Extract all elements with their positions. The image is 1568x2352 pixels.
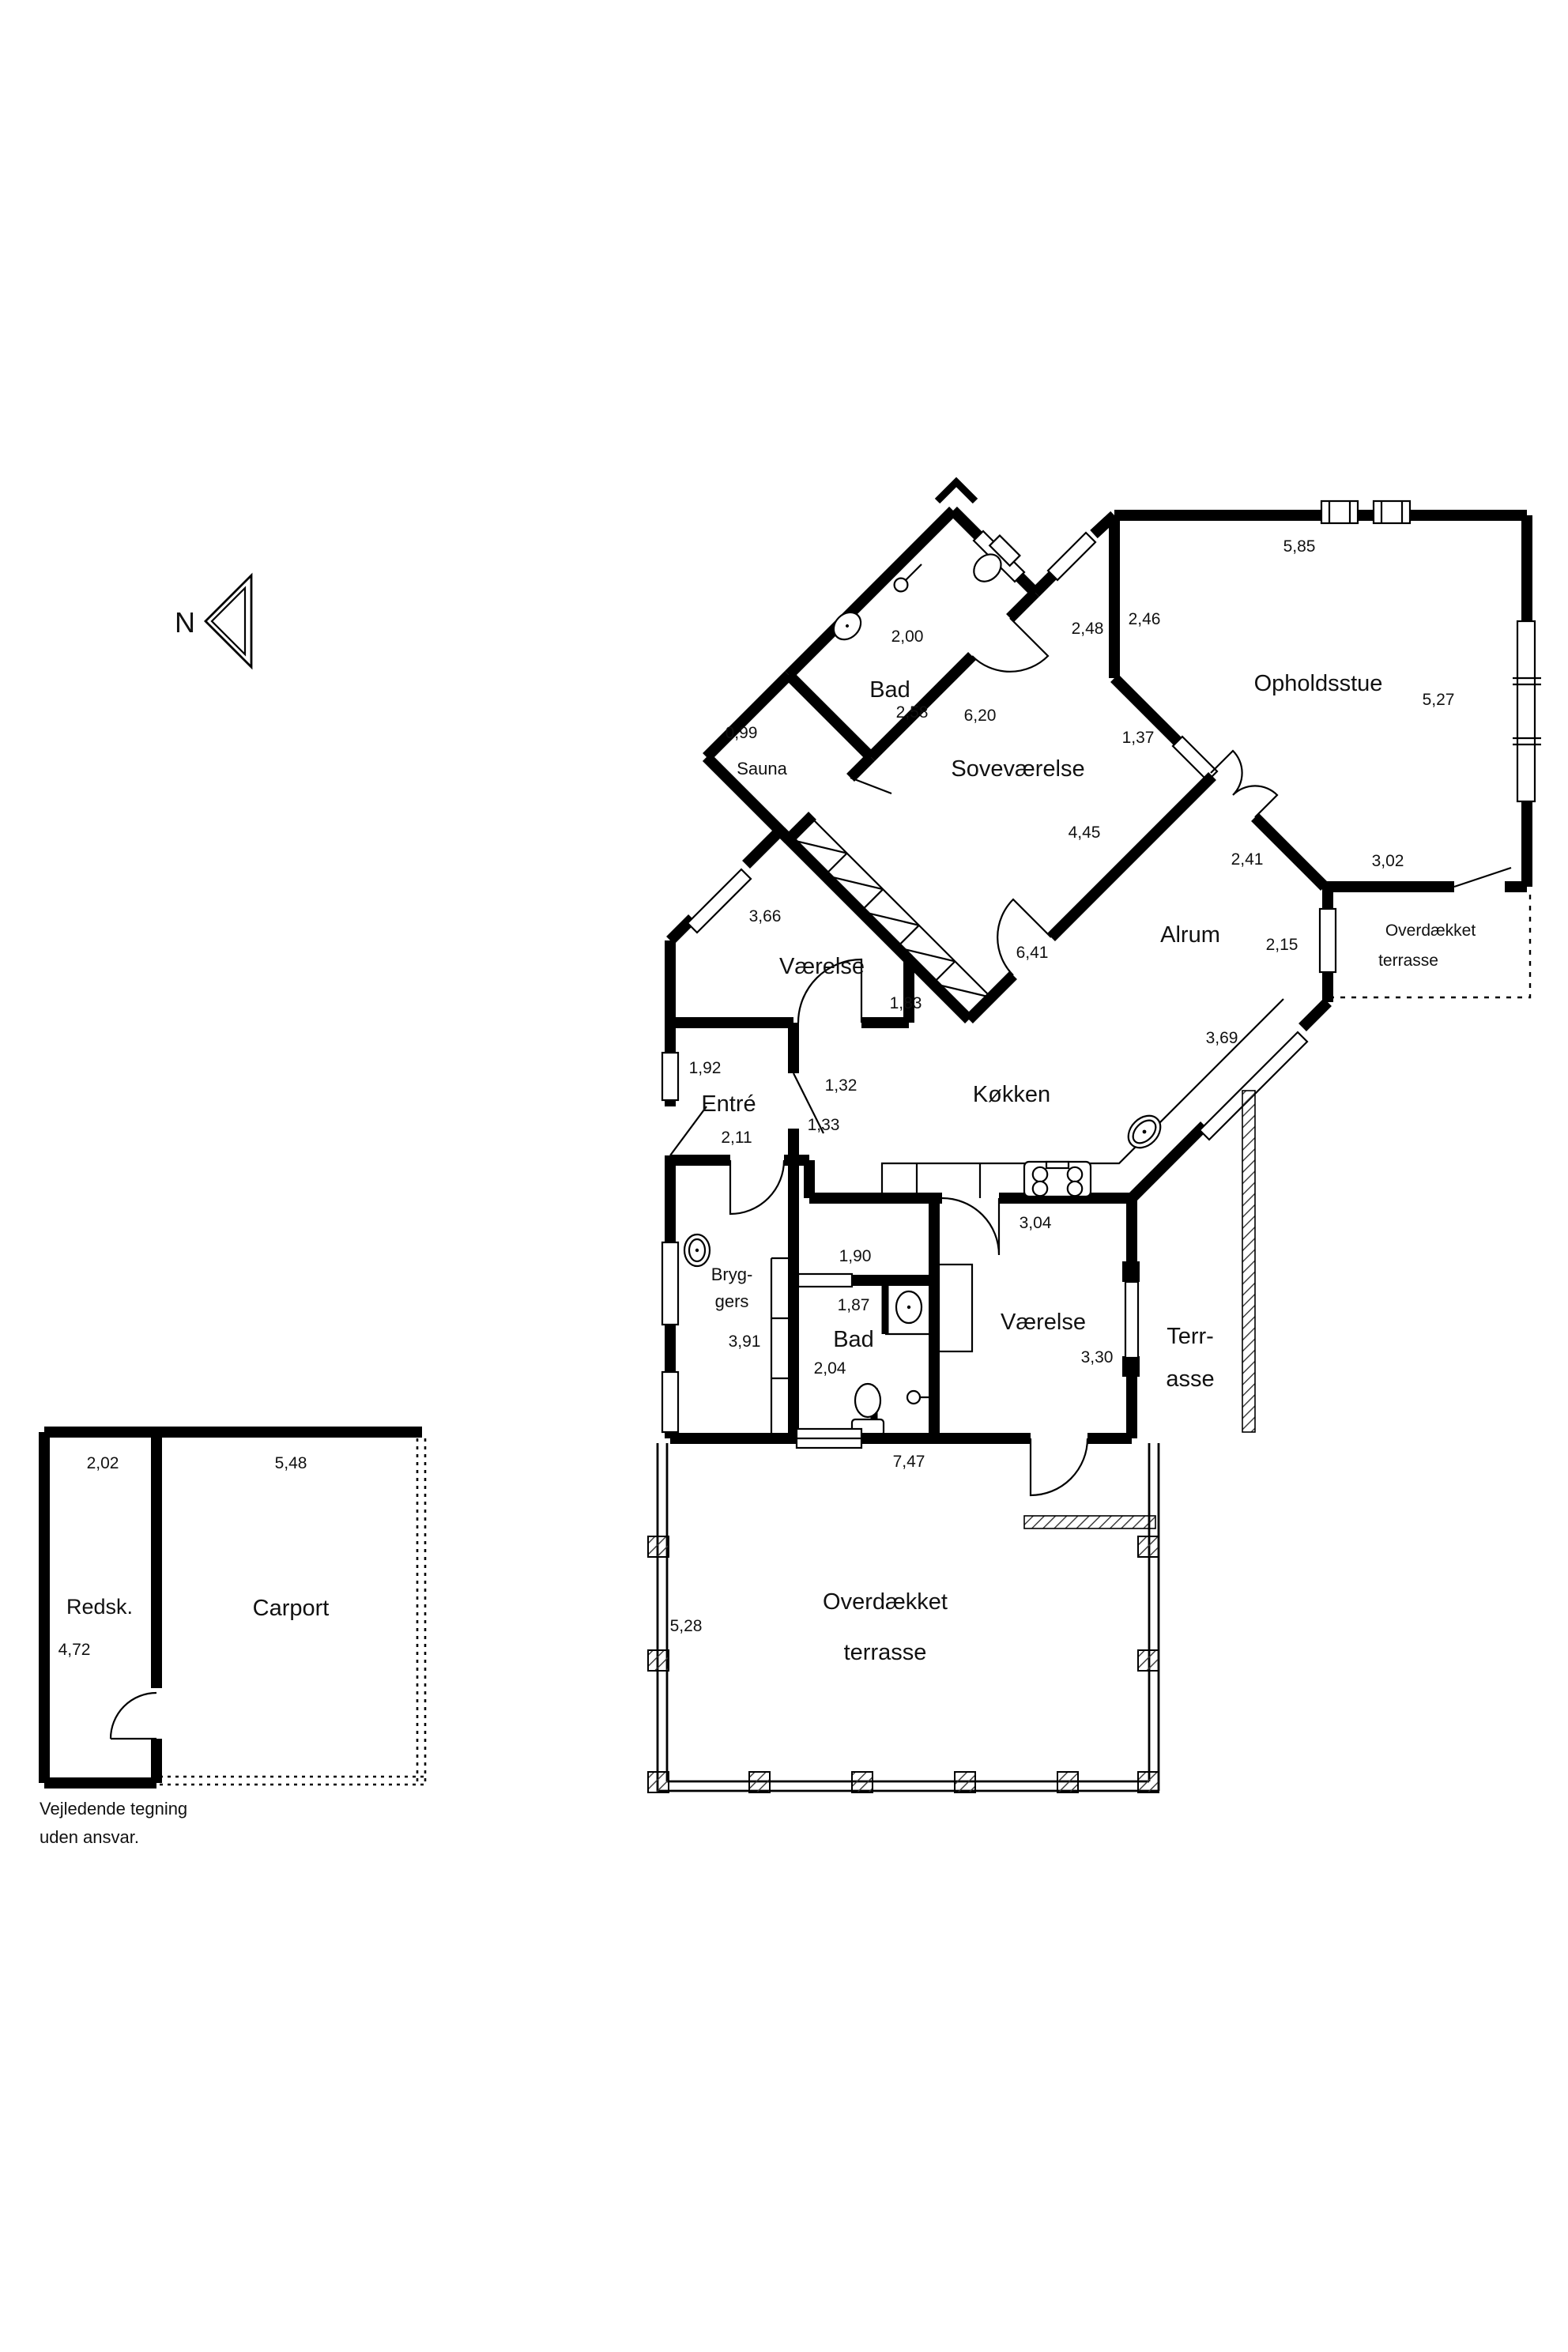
terrasse-hatch-strip	[1242, 1091, 1255, 1432]
stove-icon	[1024, 1162, 1091, 1197]
overdaekket-terrasse-bottom	[648, 1443, 1159, 1792]
dimension-2-41: 2,41	[1231, 850, 1264, 869]
dimension-3-91: 3,91	[729, 1332, 761, 1351]
terrasse-hatch-connector	[1024, 1516, 1155, 1528]
room-label-redsk: Redsk.	[66, 1595, 133, 1619]
dimension-4-72: 4,72	[58, 1641, 91, 1659]
compass-label: N	[175, 606, 195, 639]
bad-upper-door	[972, 618, 1048, 672]
room-label-ovt-bot-1: Overdækket	[823, 1589, 948, 1615]
room-label-ovt-top-1: Overdækket	[1385, 922, 1476, 940]
sink-icon-bad-lower	[896, 1291, 922, 1323]
dimension-2-46: 2,46	[1129, 610, 1161, 628]
lower-wing-walls	[662, 999, 1283, 1495]
diagonal-wing-walls	[707, 482, 1217, 1020]
room-label-bad-2: Bad	[833, 1327, 874, 1352]
room-label-carport: Carport	[253, 1596, 330, 1621]
dimension-7-47: 7,47	[893, 1453, 925, 1471]
dimension-1-87: 1,87	[838, 1296, 870, 1314]
room-label-ovt-top-2: terrasse	[1378, 952, 1438, 970]
sov-nook-window	[1048, 533, 1095, 580]
dimension-1-33: 1,33	[808, 1116, 840, 1134]
vaerelse2-wardrobe	[939, 1265, 972, 1351]
room-label-opholdsstue: Opholdsstue	[1254, 671, 1383, 696]
toilet-icon-lower	[852, 1384, 884, 1435]
dimension-3-30: 3,30	[1081, 1348, 1114, 1366]
dimension-1-83: 1,83	[890, 994, 922, 1012]
dimension-5-27: 5,27	[1423, 691, 1455, 709]
vaerelse1-window	[688, 869, 751, 933]
dimension-5-28: 5,28	[670, 1617, 703, 1635]
sauna-door-leaf	[850, 778, 891, 793]
left-rooms-walls	[662, 757, 909, 1214]
alrum-window-215	[1320, 909, 1336, 972]
shower-icon	[895, 579, 908, 592]
sink-icon-bryggers	[684, 1234, 710, 1266]
redsk-door	[111, 1693, 156, 1739]
skylight-icon	[1321, 501, 1358, 523]
room-label-alrum: Alrum	[1160, 922, 1220, 948]
shower-icon-lower	[907, 1391, 920, 1404]
bad2-sliding-door	[798, 1274, 852, 1287]
room-label-ovt-bot-2: terrasse	[844, 1640, 927, 1665]
dimension-1-90: 1,90	[839, 1247, 872, 1265]
room-label-bad-1: Bad	[869, 677, 910, 703]
upper-terrace-dashed-edge	[1332, 895, 1530, 997]
dimension-2-02: 2,02	[87, 1454, 119, 1472]
toilet-icon	[967, 536, 1020, 589]
dimension-2-58: 2,58	[896, 703, 929, 722]
sink-icon-kitchen	[1122, 1110, 1167, 1155]
disclaimer-line-2: uden ansvar.	[40, 1827, 139, 1847]
dimension-2-04: 2,04	[814, 1359, 846, 1378]
entre-window	[662, 1053, 678, 1100]
room-label-vaerelse-1: Værelse	[779, 954, 865, 979]
bryggers-window-1	[662, 1242, 678, 1325]
terrace-door	[1031, 1438, 1087, 1495]
dimension-2-11: 2,11	[721, 1129, 752, 1147]
room-label-koekken: Køkken	[973, 1082, 1050, 1107]
room-label-sovevaerelse: Soveværelse	[951, 756, 1084, 782]
room-label-bryggers-2: gers	[715, 1291, 749, 1311]
dimension-1-37: 1,37	[1122, 729, 1155, 747]
disclaimer-line-1: Vejledende tegning	[40, 1799, 187, 1819]
dimension-5-48: 5,48	[275, 1454, 307, 1472]
room-label-terrasse-1: Terr-	[1167, 1324, 1214, 1349]
room-label-sauna: Sauna	[737, 759, 787, 778]
window-post	[1122, 1261, 1140, 1282]
floor-plan-drawing: BadSaunaSoveværelseOpholdsstueVærelseAlr…	[0, 0, 1568, 2352]
room-label-entre: Entré	[701, 1091, 756, 1117]
north-arrow-icon	[205, 575, 251, 667]
dimension-6-41: 6,41	[1016, 944, 1049, 962]
dimension-3-69: 3,69	[1206, 1029, 1238, 1047]
dimension-3-66: 3,66	[749, 907, 782, 925]
room-label-bryggers-1: Bryg-	[711, 1265, 753, 1284]
vaerelse2-window	[1125, 1282, 1138, 1358]
sov-alrum-door	[997, 899, 1051, 975]
opholdsstue-window	[1517, 621, 1535, 801]
room-label-terrasse-2: asse	[1166, 1366, 1214, 1392]
room-label-vaerelse-2: Værelse	[1001, 1310, 1086, 1335]
opholdsstue-terrace-door	[1454, 868, 1511, 887]
dimension-2-48: 2,48	[1072, 620, 1104, 638]
bryggers-window-2	[662, 1372, 678, 1432]
window-post	[1122, 1356, 1140, 1377]
alrum-opholdsstue-double-door	[1211, 751, 1277, 817]
bryggers-door	[730, 1160, 784, 1214]
vaerelse2-door	[942, 1198, 999, 1255]
note-labels: NVejledende tegninguden ansvar.	[40, 606, 195, 1847]
dimension-4-45: 4,45	[1069, 824, 1101, 842]
skylight-icon	[1374, 501, 1410, 523]
dimension-1-32: 1,32	[825, 1076, 857, 1095]
sink-icon-bad-upper	[828, 607, 866, 645]
dimension-6-20: 6,20	[964, 707, 997, 725]
dimension-1-92: 1,92	[689, 1059, 722, 1077]
dimension-3-02: 3,02	[1372, 852, 1404, 870]
dimension-0-99: 0,99	[726, 724, 758, 742]
floor-plan-page: BadSaunaSoveværelseOpholdsstueVærelseAlr…	[0, 0, 1568, 2352]
dimension-2-15: 2,15	[1266, 936, 1298, 954]
dimension-5-85: 5,85	[1283, 537, 1316, 556]
dimension-3-04: 3,04	[1020, 1214, 1052, 1232]
dimension-2-00: 2,00	[891, 628, 924, 646]
